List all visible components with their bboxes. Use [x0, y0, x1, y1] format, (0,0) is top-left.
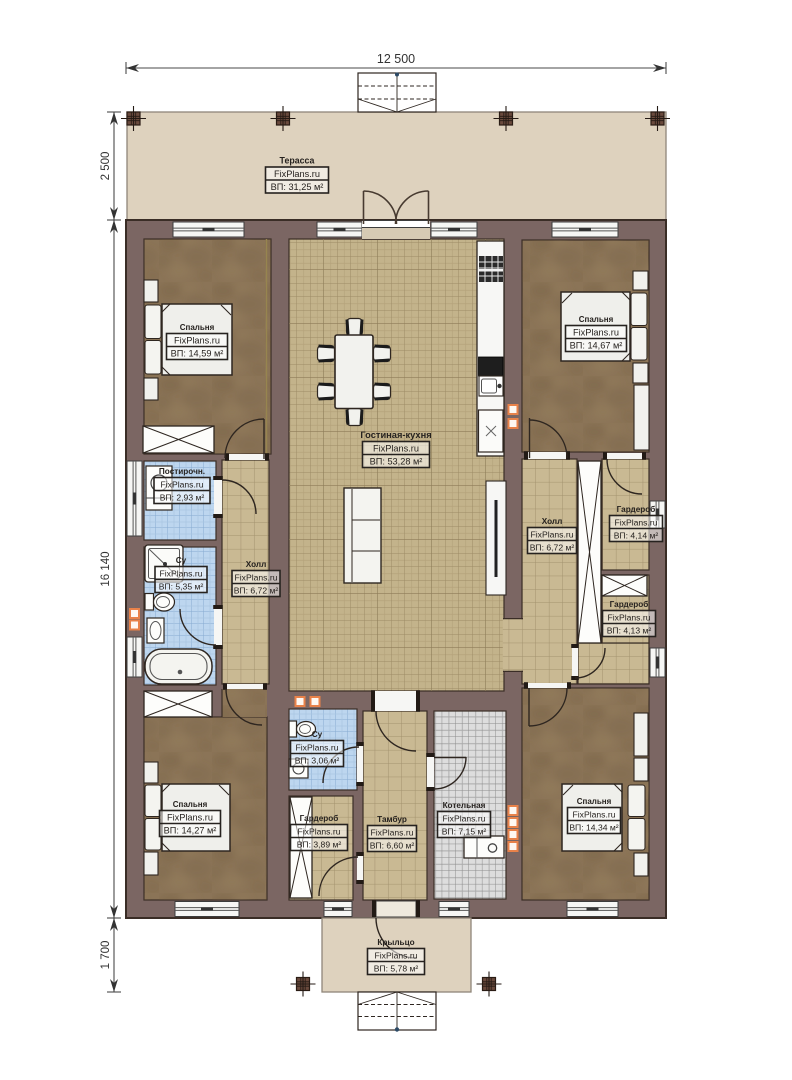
svg-text:12 500: 12 500: [377, 52, 415, 66]
svg-text:FixPlans.ru: FixPlans.ru: [573, 328, 619, 338]
svg-text:Тамбур: Тамбур: [377, 814, 407, 824]
svg-text:ВП: 14,67 м²: ВП: 14,67 м²: [570, 341, 623, 351]
svg-text:Холл: Холл: [246, 560, 267, 569]
svg-text:ВП: 4,14 м²: ВП: 4,14 м²: [614, 531, 659, 541]
svg-text:Спальня: Спальня: [173, 800, 208, 809]
svg-text:ВП: 31,25 м²: ВП: 31,25 м²: [271, 182, 324, 192]
svg-text:ВП: 53,28 м²: ВП: 53,28 м²: [370, 457, 423, 467]
svg-text:FixPlans.ru: FixPlans.ru: [531, 530, 574, 540]
svg-text:FixPlans.ru: FixPlans.ru: [608, 613, 651, 623]
svg-text:Спальня: Спальня: [577, 797, 612, 806]
svg-text:FixPlans.ru: FixPlans.ru: [161, 480, 204, 490]
svg-text:FixPlans.ru: FixPlans.ru: [235, 573, 278, 583]
svg-text:FixPlans.ru: FixPlans.ru: [160, 569, 203, 579]
svg-text:ВП: 14,27 м²: ВП: 14,27 м²: [164, 826, 217, 836]
svg-text:FixPlans.ru: FixPlans.ru: [174, 336, 220, 346]
svg-text:1 700: 1 700: [100, 941, 112, 970]
svg-text:FixPlans.ru: FixPlans.ru: [443, 814, 486, 824]
svg-text:Спальня: Спальня: [180, 323, 215, 332]
svg-text:Терасса: Терасса: [280, 156, 315, 166]
svg-text:Крыльцо: Крыльцо: [377, 938, 414, 947]
svg-text:ВП: 2,93 м²: ВП: 2,93 м²: [160, 493, 205, 503]
svg-text:ВП: 5,78 м²: ВП: 5,78 м²: [374, 964, 419, 974]
svg-text:Спальня: Спальня: [579, 315, 614, 324]
svg-text:ВП: 14,59 м²: ВП: 14,59 м²: [171, 349, 224, 359]
svg-text:Гостиная-кухня: Гостиная-кухня: [360, 430, 431, 440]
svg-text:ВП: 3,06 м²: ВП: 3,06 м²: [295, 756, 340, 766]
svg-text:ВП: 6,72 м²: ВП: 6,72 м²: [530, 543, 575, 553]
svg-text:FixPlans.ru: FixPlans.ru: [615, 518, 658, 528]
svg-text:Котельная: Котельная: [443, 801, 486, 810]
svg-text:FixPlans.ru: FixPlans.ru: [274, 169, 320, 179]
svg-text:FixPlans.ru: FixPlans.ru: [375, 951, 418, 961]
svg-text:ВП: 3,89 м²: ВП: 3,89 м²: [297, 840, 342, 850]
svg-text:ВП: 6,72 м²: ВП: 6,72 м²: [234, 586, 279, 596]
svg-text:ВП: 5,35 м²: ВП: 5,35 м²: [159, 582, 204, 592]
svg-text:ВП: 6,60 м²: ВП: 6,60 м²: [370, 841, 415, 851]
svg-text:FixPlans.ru: FixPlans.ru: [296, 743, 339, 753]
svg-text:ВП: 14,34 м²: ВП: 14,34 м²: [569, 823, 618, 833]
svg-text:FixPlans.ru: FixPlans.ru: [573, 810, 616, 820]
svg-text:FixPlans.ru: FixPlans.ru: [371, 828, 414, 838]
svg-text:ВП: 4,13 м²: ВП: 4,13 м²: [607, 626, 652, 636]
svg-text:Су: Су: [176, 556, 187, 565]
svg-text:Гардероб: Гардероб: [610, 599, 649, 609]
svg-text:Холл: Холл: [542, 517, 563, 526]
svg-text:FixPlans.ru: FixPlans.ru: [298, 827, 341, 837]
svg-text:FixPlans.ru: FixPlans.ru: [373, 444, 419, 454]
svg-text:2 500: 2 500: [100, 152, 112, 181]
svg-text:ВП: 7,15 м²: ВП: 7,15 м²: [442, 827, 487, 837]
svg-text:Постирочн.: Постирочн.: [159, 467, 205, 476]
svg-text:FixPlans.ru: FixPlans.ru: [167, 813, 213, 823]
svg-text:Су: Су: [312, 730, 323, 739]
svg-text:16 140: 16 140: [100, 551, 112, 586]
svg-text:Гардероб: Гардероб: [300, 813, 339, 823]
svg-text:Гардероб: Гардероб: [617, 504, 656, 514]
